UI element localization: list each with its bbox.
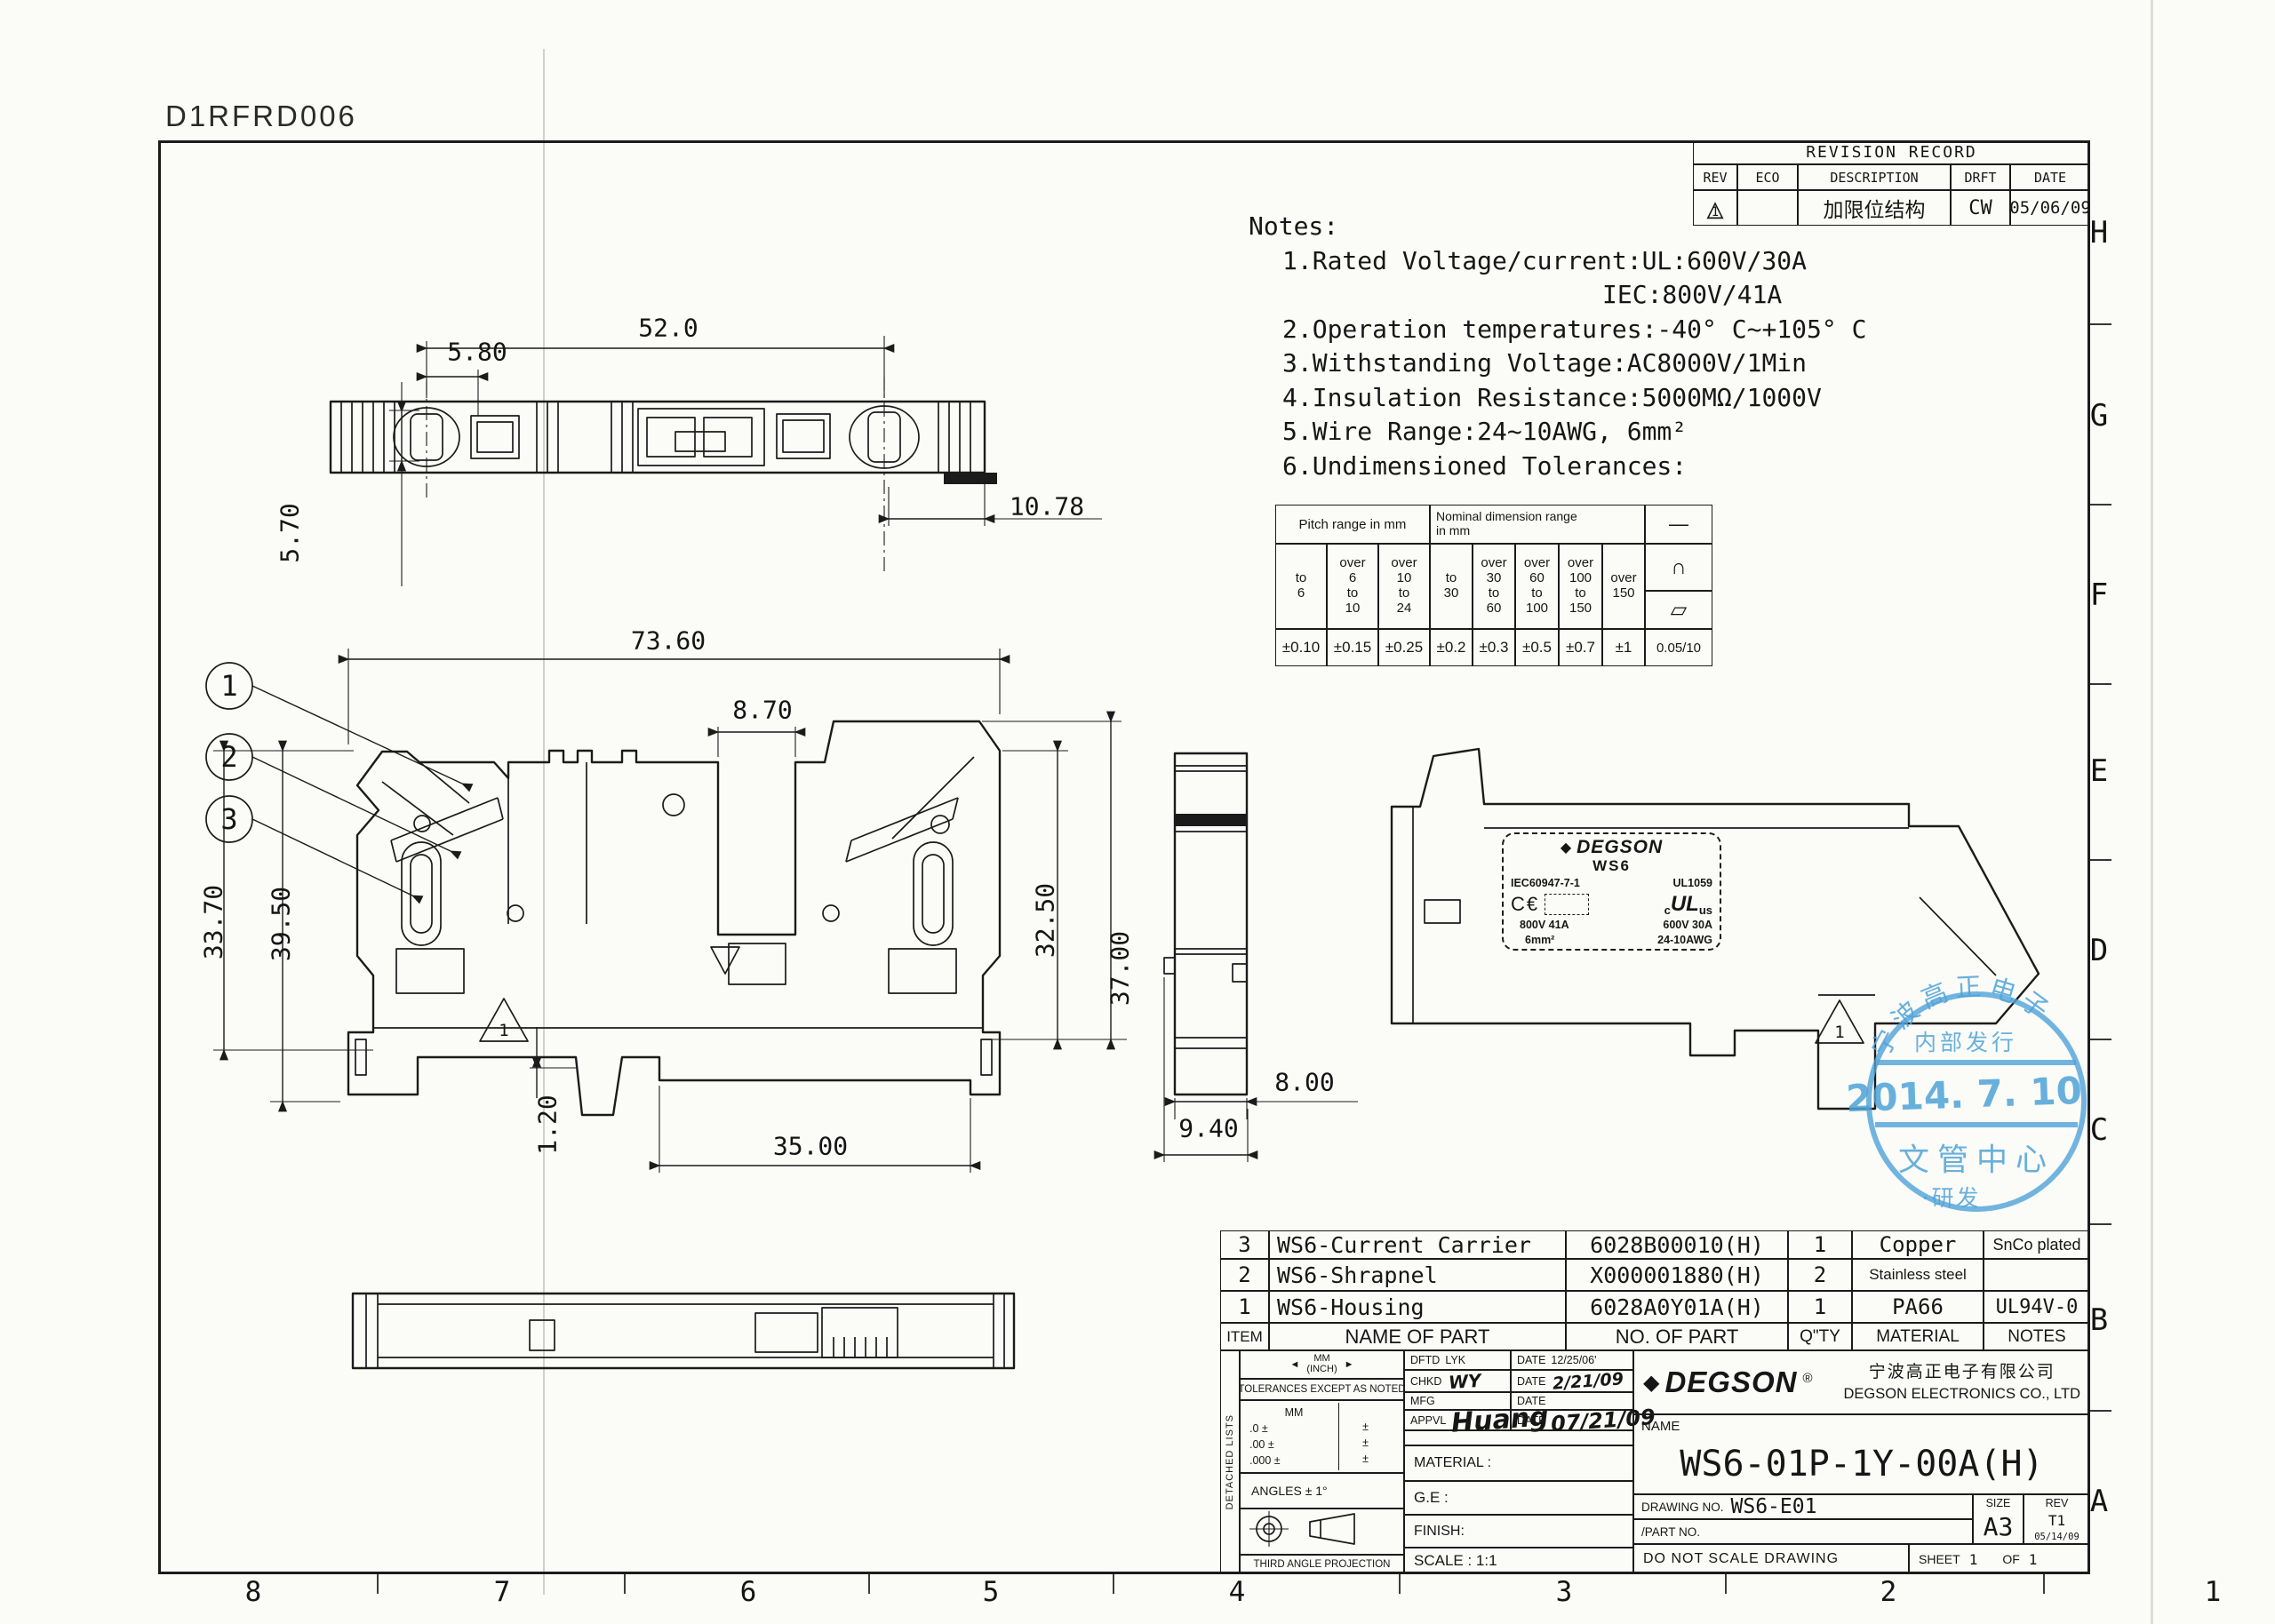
tol-val-1: ±0.10 (1275, 629, 1327, 666)
tol-row-1-value: ± (1339, 1435, 1392, 1451)
part-row1-qty: 1 (1788, 1291, 1852, 1323)
appvl-label: APPVL (1410, 1414, 1446, 1427)
appvl-date-cell: DATE 07/21/09 (1511, 1410, 1633, 1430)
dim-front-h-right-outer: 37.00 (1106, 931, 1135, 1006)
grid-ref-right-b: B (2090, 1302, 2108, 1338)
tol-unit-header: MM (1249, 1405, 1338, 1421)
dim-front-slot: 8.70 (732, 696, 792, 725)
grid-ref-bottom-4: 4 (1229, 1576, 1246, 1608)
note-6: 6.Undimensioned Tolerances: (1282, 450, 1924, 484)
units-arrow-right-icon: ► (1345, 1359, 1354, 1370)
degson-titleblock-logo-icon: ◆ (1643, 1370, 1659, 1396)
titleblock-reg: ® (1803, 1371, 1813, 1386)
detached-lists-strip: DETACHED LISTS (1220, 1350, 1240, 1574)
grid-ref-bottom-2: 2 (1880, 1576, 1897, 1608)
balloon-2: 2 (220, 740, 237, 774)
appvl-date-label: DATE (1517, 1414, 1545, 1427)
grid-ref-bottom-6: 6 (740, 1576, 757, 1608)
parts-header-qty: Q"TY (1788, 1323, 1852, 1350)
part-row1-item: 1 (1220, 1291, 1269, 1323)
size-box: SIZE A3 (1973, 1494, 2024, 1544)
grid-ref-right-d: D (2090, 933, 2108, 968)
dim-front-rail: 35.00 (773, 1132, 848, 1161)
title-block: DETACHED LISTS ◄ MM (INCH) ► TOLERANCES … (1220, 1350, 2090, 1574)
tol-nom-col-3: over 60 to 100 (1515, 544, 1559, 629)
sheet-box: SHEET 1 OF 1 (1909, 1544, 2090, 1574)
revision-col-eco: ECO (1737, 164, 1798, 190)
revision-drft-cell: CW (1951, 190, 2010, 226)
label-ul-rating: 600V 30A (1663, 919, 1712, 931)
rev-date: 05/14/09 (2034, 1532, 2079, 1542)
tol-pitch-header: Pitch range in mm (1275, 505, 1430, 544)
revision-date-cell: 05/06/09 (2010, 190, 2090, 226)
chkd-date-label: DATE (1517, 1375, 1545, 1388)
units-inch: (INCH) (1306, 1365, 1337, 1375)
ce-mark-icon: C€ (1511, 893, 1539, 916)
tol-pitch-col-3: over 10 to 24 (1378, 544, 1430, 629)
tolerance-table: Pitch range in mm Nominal dimension rang… (1275, 505, 1712, 666)
tol-val-6: ±0.5 (1515, 629, 1559, 666)
detached-lists-label: DETACHED LISTS (1225, 1414, 1235, 1509)
label-iec-wire: 6mm² (1511, 934, 1554, 946)
sheet-num: 1 (1969, 1551, 1978, 1568)
tol-val-2: ±0.15 (1327, 629, 1378, 666)
note-4: 4.Insulation Resistance:5000MΩ/1000V (1282, 381, 1924, 416)
tol-val-9: 0.05/10 (1645, 629, 1712, 666)
material-cell: MATERIAL : (1404, 1445, 1633, 1481)
dim-top-pitch: 5.80 (447, 338, 507, 367)
drawing-no-label: DRAWING NO. (1641, 1501, 1724, 1514)
grid-ref-bottom-8: 8 (245, 1576, 262, 1608)
rev-label: REV (2046, 1497, 2069, 1509)
tol-row-2-value: ± (1339, 1451, 1392, 1467)
rev-triangle-number-right: 1 (1834, 1023, 1844, 1042)
degson-logo-icon: ◆ (1561, 839, 1571, 856)
do-not-scale-box: DO NOT SCALE DRAWING (1633, 1544, 1909, 1574)
tol-nominal-header: Nominal dimension range in mm (1430, 505, 1645, 544)
tol-nom-col-5: over 150 (1602, 544, 1645, 629)
units-arrow-left-icon: ◄ (1290, 1359, 1300, 1370)
grid-ref-right-e: E (2090, 753, 2108, 789)
note-1: 1.Rated Voltage/current:UL:600V/30A (1282, 244, 1924, 279)
part-row2-item: 2 (1220, 1259, 1269, 1291)
chkd-date-value: 2/21/09 (1553, 1370, 1624, 1392)
grid-ref-bottom-1: 1 (2205, 1576, 2222, 1608)
rev-value: T1 (2048, 1512, 2065, 1529)
part-row3-no: 6028B00010(H) (1566, 1230, 1788, 1259)
dim-front-total: 73.60 (631, 626, 706, 656)
part-row3-name: WS6-Current Carrier (1269, 1230, 1566, 1259)
size-value: A3 (1984, 1512, 2014, 1541)
product-label: ◆ DEGSON WS6 IEC60947-7-1 UL1059 C€ c UL… (1502, 832, 1721, 951)
parts-header-name: NAME OF PART (1269, 1323, 1566, 1350)
part-row1-no: 6028A0Y01A(H) (1566, 1291, 1788, 1323)
tol-val-8: ±1 (1602, 629, 1645, 666)
tol-symbol-straight: — (1645, 505, 1712, 544)
tolerance-values-box: MM .0 ± .00 ± .000 ± ± ± ± (1240, 1400, 1404, 1473)
units-box: ◄ MM (INCH) ► (1240, 1350, 1404, 1379)
note-1b: IEC:800V/41A (1282, 278, 1924, 313)
grid-ref-bottom-7: 7 (494, 1576, 511, 1608)
company-cn: 宁波高正电子有限公司 (1844, 1361, 2080, 1384)
label-ul-wire: 24-10AWG (1657, 934, 1712, 946)
staff-blank-row (1404, 1430, 1633, 1445)
grid-ref-right-h: H (2090, 215, 2108, 251)
third-angle-projection-icon (1241, 1509, 1374, 1548)
sheet-label: SHEET (1919, 1552, 1960, 1566)
revision-col-date: DATE (2010, 164, 2090, 190)
part-row3-item: 3 (1220, 1230, 1269, 1259)
stamp-date: 2014. 7. 10 (1845, 1069, 2082, 1120)
revision-col-rev: REV (1693, 164, 1737, 190)
label-iec-rating: 800V 41A (1511, 919, 1569, 931)
cul-mark-ul-icon: UL (1671, 892, 1699, 917)
scale-cell: SCALE : 1:1 (1404, 1548, 1633, 1574)
dftd-date-value: 12/25/06' (1551, 1354, 1596, 1366)
cul-mark-c: c (1664, 904, 1671, 917)
chkd-signature: WY (1449, 1370, 1482, 1392)
revision-col-desc: DESCRIPTION (1798, 164, 1951, 190)
revision-title: REVISION RECORD (1693, 140, 2090, 164)
dftd-date-label: DATE (1517, 1354, 1545, 1366)
dim-front-step: 1.20 (533, 1095, 563, 1154)
part-row2-qty: 2 (1788, 1259, 1852, 1291)
parts-header-no: NO. OF PART (1566, 1323, 1788, 1350)
appvl-cell: APPVL Huang (1404, 1410, 1511, 1430)
drawing-no-value: WS6-E01 (1731, 1495, 1817, 1518)
company-en: DEGSON ELECTRONICS CO., LTD (1844, 1384, 2080, 1404)
label-brand: DEGSON (1577, 837, 1663, 858)
sheet-code: D1RFRD006 (165, 100, 357, 133)
notes-block: Notes: 1.Rated Voltage/current:UL:600V/3… (1249, 210, 1924, 483)
grid-ref-bottom-5: 5 (983, 1576, 1000, 1608)
note-2: 2.Operation temperatures:-40° C~+105° C (1282, 313, 1924, 347)
label-iec-standard: IEC60947-7-1 (1511, 877, 1580, 889)
tol-row-2-label: .000 ± (1249, 1453, 1338, 1469)
part-row2-material: Stainless steel (1852, 1259, 1984, 1291)
dim-front-h-left-outer: 39.50 (267, 887, 296, 961)
stamp-line3: 文管中心 (1898, 1135, 2055, 1181)
part-row2-name: WS6-Shrapnel (1269, 1259, 1566, 1291)
chkd-cell: CHKD WY (1404, 1370, 1511, 1392)
part-row1-material: PA66 (1852, 1291, 1984, 1323)
rev-box: REV T1 05/14/09 (2024, 1494, 2090, 1544)
part-row3-notes: SnCo plated (1984, 1230, 2090, 1259)
tol-nom-col-2: over 30 to 60 (1473, 544, 1515, 629)
dim-side-total: 9.40 (1178, 1114, 1238, 1143)
part-row3-qty: 1 (1788, 1230, 1852, 1259)
part-row2-no: X000001880(H) (1566, 1259, 1788, 1291)
mfg-label: MFG (1410, 1395, 1435, 1407)
label-ul-standard: UL1059 (1673, 877, 1712, 889)
company-box: ◆ DEGSON ® 宁波高正电子有限公司 DEGSON ELECTRONICS… (1633, 1350, 2090, 1414)
name-label: NAME (1641, 1419, 1680, 1434)
tol-row-0-value: ± (1339, 1419, 1392, 1435)
rev-triangle-number-left: 1 (499, 1021, 508, 1040)
dim-top-length: 52.0 (638, 314, 698, 343)
dim-top-end-offset: 10.78 (1010, 492, 1084, 521)
tol-row-1-label: .00 ± (1249, 1437, 1338, 1453)
of-num: 1 (2029, 1551, 2038, 1568)
finish-cell: FINISH: (1404, 1515, 1633, 1548)
tol-symbol-flat: ▱ (1645, 591, 1712, 629)
part-row2-notes (1984, 1259, 2090, 1291)
drawing-name-value: WS6-01P-1Y-00A(H) (1680, 1444, 2043, 1485)
of-label: OF (2002, 1552, 2019, 1566)
note-3: 3.Withstanding Voltage:AC8000V/1Min (1282, 346, 1924, 381)
dftd-date-cell: DATE 12/25/06' (1511, 1350, 1633, 1370)
grid-ref-right-g: G (2090, 398, 2108, 434)
part-row1-notes: UL94V-0 (1984, 1291, 2090, 1323)
tol-pitch-col-2: over 6 to 10 (1327, 544, 1378, 629)
tol-symbol-arc: ∩ (1645, 544, 1712, 591)
dftd-label: DFTD (1410, 1354, 1440, 1366)
revision-col-drft: DRFT (1951, 164, 2010, 190)
tol-val-3: ±0.25 (1378, 629, 1430, 666)
stamp-line4: ·研发 (1922, 1181, 1982, 1213)
tol-pitch-col-1: to 6 (1275, 544, 1327, 629)
name-box: NAME WS6-01P-1Y-00A(H) (1633, 1414, 2090, 1494)
notes-title: Notes: (1249, 210, 1924, 244)
projection-label: THIRD ANGLE PROJECTION (1240, 1555, 1404, 1574)
cul-mark-us: us (1699, 904, 1712, 917)
grid-ref-right-c: C (2090, 1112, 2108, 1148)
grid-ref-right-f: F (2090, 577, 2108, 613)
balloon-1: 1 (220, 669, 237, 703)
tol-nom-col-4: over 100 to 150 (1559, 544, 1602, 629)
parts-table: 3 WS6-Current Carrier 6028B00010(H) 1 Co… (1220, 1230, 2090, 1350)
drawing-no-box: DRAWING NO. WS6-E01 (1633, 1494, 1973, 1519)
dftd-value: LYK (1445, 1354, 1465, 1366)
angles-box: ANGLES ± 1° (1240, 1473, 1404, 1509)
tol-val-4: ±0.2 (1430, 629, 1473, 666)
tolerance-note: TOLERANCES EXCEPT AS NOTED (1240, 1379, 1404, 1400)
tol-val-7: ±0.7 (1559, 629, 1602, 666)
parts-header-notes: NOTES (1984, 1323, 2090, 1350)
note-5: 5.Wire Range:24~10AWG, 6mm² (1282, 415, 1924, 450)
tol-nom-col-1: to 30 (1430, 544, 1473, 629)
titleblock-brand: DEGSON (1664, 1365, 1797, 1399)
dim-top-height: 5.70 (275, 503, 305, 562)
dim-front-h-right-inner: 32.50 (1031, 883, 1060, 958)
dim-front-h-left-inner: 33.70 (199, 885, 228, 959)
size-label: SIZE (1986, 1497, 2011, 1509)
grid-ref-right-a: A (2090, 1484, 2108, 1519)
tol-row-0-label: .0 ± (1249, 1421, 1338, 1437)
label-series: WS6 (1511, 857, 1712, 875)
projection-symbol-box (1240, 1509, 1404, 1555)
label-approval-box (1545, 894, 1589, 915)
dftd-cell: DFTD LYK (1404, 1350, 1511, 1370)
chkd-label: CHKD (1410, 1375, 1441, 1388)
engineering-drawing-sheet: 宁波高正电子 D1RFRD006 8 7 6 5 4 3 2 1 H G F E… (0, 0, 2275, 1624)
dim-side-body: 8.00 (1274, 1068, 1334, 1097)
chkd-date-cell: DATE 2/21/09 (1511, 1370, 1633, 1392)
grid-ref-bottom-3: 3 (1556, 1576, 1573, 1608)
tol-val-5: ±0.3 (1473, 629, 1515, 666)
parts-header-item: ITEM (1220, 1323, 1269, 1350)
parts-header-material: MATERIAL (1852, 1323, 1984, 1350)
part-row1-name: WS6-Housing (1269, 1291, 1566, 1323)
part-row3-material: Copper (1852, 1230, 1984, 1259)
part-no-box: /PART NO. (1633, 1519, 1973, 1544)
balloon-3: 3 (220, 802, 237, 836)
ge-cell: G.E : (1404, 1481, 1633, 1515)
stamp-line2: 内部发行 (1914, 1025, 2017, 1057)
